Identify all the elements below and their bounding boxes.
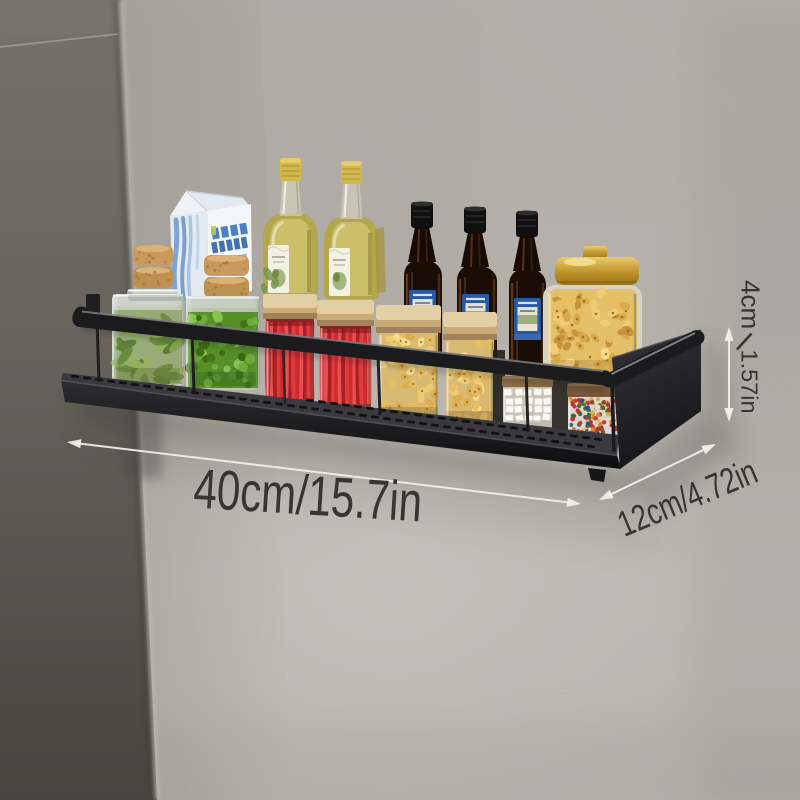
svg-text:1.57in: 1.57in [737, 350, 763, 414]
svg-text:4cm: 4cm [736, 280, 766, 329]
